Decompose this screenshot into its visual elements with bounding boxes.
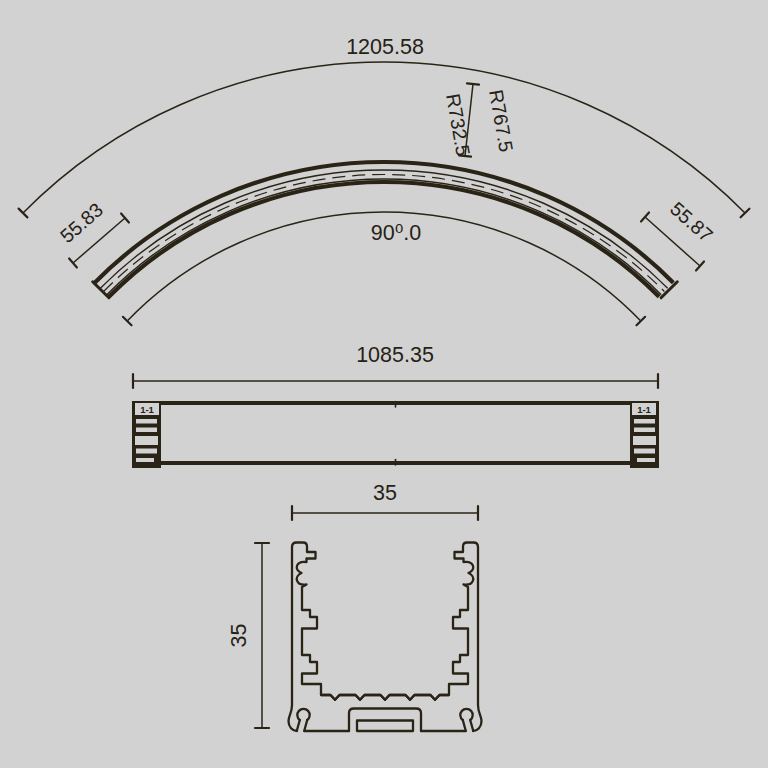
arc-angle-label: 90⁰.0 xyxy=(371,221,422,245)
end-cap-left-slot xyxy=(136,428,157,433)
end-cap-right-slot xyxy=(633,436,656,445)
section-mark-left: 1-1 xyxy=(140,404,154,415)
section-outer-wall xyxy=(289,547,298,731)
height-dimension: 35 xyxy=(227,543,269,728)
radius-dimension: R767.5 R732.5 xyxy=(442,83,518,157)
chord-dimension-arc xyxy=(23,62,745,213)
end-cap-right-slot xyxy=(634,419,655,424)
radius-dim-tick-top xyxy=(467,83,479,84)
screw-port-slit-left xyxy=(297,720,300,731)
right-end-length-label: 55.87 xyxy=(666,197,717,246)
drawing-canvas: 1205.58 R767.5 R732.5 90⁰.0 xyxy=(0,0,768,768)
end-cap-left-slot xyxy=(136,419,157,424)
end-cap-left-slot xyxy=(136,449,157,454)
profile-body-outline xyxy=(135,403,656,463)
section-mark-right: 1-1 xyxy=(637,404,651,415)
section-right-half xyxy=(321,543,482,732)
cross-section-view: 35 35 xyxy=(227,481,482,731)
screw-port-circle xyxy=(297,709,309,720)
end-cap-right-slot xyxy=(634,428,655,433)
end-cap-left-slot xyxy=(135,436,158,445)
left-end-dimension: 55.83 xyxy=(56,198,129,267)
end-cap-left: 1-1 xyxy=(132,401,161,468)
section-height-label: 35 xyxy=(227,624,251,648)
band-end-cut-left xyxy=(93,282,109,298)
section-left-half xyxy=(289,543,450,732)
t-slot xyxy=(349,709,421,732)
section-inner-wall xyxy=(292,543,449,700)
end-cap-left-slot xyxy=(136,458,154,462)
width-dimension: 35 xyxy=(292,481,478,520)
side-view: 1085.35 1-1 1-1 xyxy=(132,343,659,468)
technical-drawing-svg: 1205.58 R767.5 R732.5 90⁰.0 xyxy=(0,0,768,768)
chord-dimension: 1205.58 xyxy=(19,35,750,217)
section-width-label: 35 xyxy=(373,481,397,505)
length-dimension: 1085.35 xyxy=(133,343,658,388)
screw-port-slit-right xyxy=(304,720,307,731)
overall-length-label: 1085.35 xyxy=(356,343,434,367)
end-cap-right: 1-1 xyxy=(630,401,659,468)
outer-radius-label: R767.5 xyxy=(485,88,518,154)
right-end-dimension: 55.87 xyxy=(641,197,717,270)
end-cap-right-slot xyxy=(634,449,655,454)
t-slot-center-tab xyxy=(357,721,413,732)
inner-radius-label: R732.5 xyxy=(442,92,475,158)
end-cap-right-slot xyxy=(637,458,655,462)
plan-view: 1205.58 R767.5 R732.5 90⁰.0 xyxy=(19,35,750,325)
chord-length-label: 1205.58 xyxy=(346,35,424,59)
